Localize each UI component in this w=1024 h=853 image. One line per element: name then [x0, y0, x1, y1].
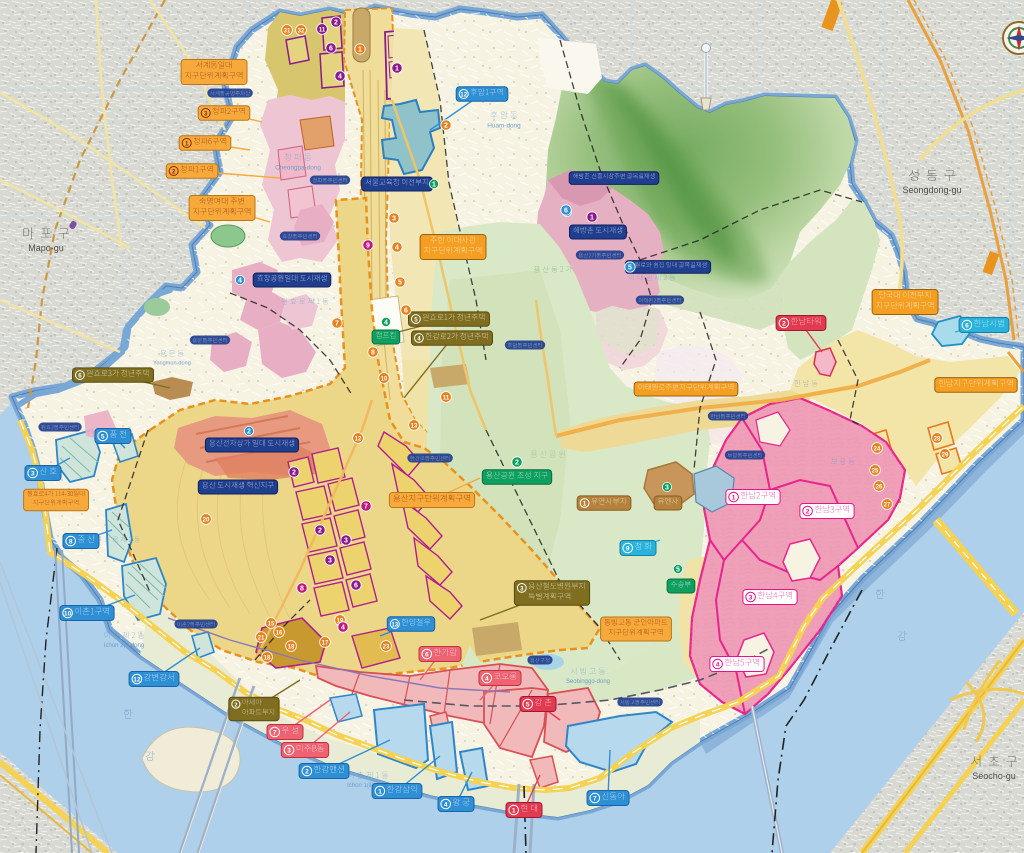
svg-text:4: 4 [716, 662, 720, 669]
svg-text:2: 2 [247, 429, 251, 436]
svg-text:2: 2 [782, 321, 786, 328]
svg-text:5: 5 [676, 567, 680, 574]
svg-text:6: 6 [965, 323, 969, 330]
svg-text:2: 2 [444, 123, 448, 130]
svg-text:32: 32 [298, 28, 305, 34]
svg-text:12: 12 [460, 92, 467, 99]
svg-text:5: 5 [398, 280, 402, 287]
svg-text:2: 2 [172, 169, 176, 176]
svg-text:7: 7 [593, 796, 597, 803]
svg-text:1: 1 [512, 808, 516, 815]
svg-text:3: 3 [665, 485, 669, 492]
svg-text:23: 23 [383, 644, 390, 650]
svg-text:3: 3 [392, 216, 396, 223]
svg-text:Huam-dong: Huam-dong [487, 123, 521, 130]
svg-text:24: 24 [874, 446, 881, 452]
svg-text:2: 2 [305, 769, 309, 776]
svg-text:3: 3 [328, 558, 332, 565]
svg-text:5: 5 [628, 265, 632, 272]
svg-text:Cheongpa-dong: Cheongpa-dong [275, 165, 321, 172]
svg-text:28: 28 [934, 436, 941, 442]
svg-text:1: 1 [378, 789, 382, 796]
svg-text:1: 1 [732, 495, 736, 502]
svg-text:17: 17 [322, 640, 329, 646]
svg-text:9: 9 [626, 546, 630, 553]
svg-text:2: 2 [334, 20, 338, 27]
svg-text:10: 10 [64, 611, 72, 618]
svg-text:6: 6 [329, 46, 333, 53]
svg-text:1: 1 [395, 66, 399, 73]
svg-text:25: 25 [872, 468, 879, 474]
svg-text:5: 5 [101, 434, 105, 441]
svg-text:5: 5 [414, 317, 418, 324]
svg-text:8: 8 [300, 586, 304, 593]
svg-text:31: 31 [284, 28, 291, 34]
svg-text:6: 6 [404, 308, 408, 315]
svg-text:27: 27 [884, 502, 891, 508]
svg-text:6: 6 [354, 583, 358, 590]
svg-text:8: 8 [371, 350, 375, 357]
svg-text:Seocho-gu: Seocho-gu [972, 771, 1016, 781]
svg-text:10: 10 [381, 376, 388, 382]
svg-text:3: 3 [204, 111, 208, 118]
svg-text:Seobinggo-dong: Seobinggo-dong [566, 679, 610, 685]
svg-text:12: 12 [355, 436, 362, 442]
svg-text:20: 20 [203, 517, 210, 523]
svg-text:4: 4 [341, 625, 345, 632]
svg-text:4: 4 [485, 676, 489, 683]
svg-text:4: 4 [338, 74, 342, 81]
svg-text:3: 3 [344, 538, 348, 545]
svg-text:4: 4 [395, 245, 399, 252]
svg-text:13: 13 [391, 622, 398, 629]
svg-text:2: 2 [292, 470, 296, 477]
svg-text:16: 16 [276, 630, 283, 636]
svg-text:21: 21 [258, 635, 265, 641]
svg-text:2: 2 [318, 528, 322, 535]
svg-text:3: 3 [31, 471, 35, 478]
svg-text:1: 1 [590, 215, 594, 222]
svg-text:2: 2 [234, 703, 237, 709]
svg-text:1: 1 [185, 141, 189, 148]
svg-text:18: 18 [288, 644, 295, 650]
svg-text:3: 3 [287, 748, 291, 755]
svg-text:1: 1 [432, 182, 436, 189]
svg-text:4: 4 [417, 336, 421, 343]
svg-text:18: 18 [264, 655, 271, 661]
svg-text:12: 12 [133, 677, 141, 684]
svg-text:Mapo-gu: Mapo-gu [28, 243, 64, 253]
svg-text:5: 5 [526, 702, 530, 709]
svg-text:6: 6 [564, 208, 568, 215]
svg-text:7: 7 [273, 730, 277, 737]
svg-text:13: 13 [411, 423, 418, 429]
svg-text:Ichon 2(i)-dong: Ichon 2(i)-dong [104, 643, 144, 649]
svg-text:11: 11 [319, 27, 326, 33]
svg-text:7: 7 [335, 321, 339, 328]
svg-text:3: 3 [749, 595, 753, 602]
svg-text:2: 2 [515, 460, 519, 467]
svg-text:9: 9 [366, 243, 370, 250]
svg-text:2: 2 [806, 509, 810, 516]
svg-text:Yongmun-dong: Yongmun-dong [153, 361, 191, 367]
svg-text:26: 26 [876, 484, 883, 490]
svg-text:Seongdong-gu: Seongdong-gu [902, 185, 961, 195]
svg-text:8: 8 [69, 539, 73, 546]
svg-text:4: 4 [238, 278, 242, 285]
svg-text:6: 6 [425, 652, 429, 659]
svg-text:7: 7 [364, 504, 368, 511]
svg-text:6: 6 [78, 373, 82, 380]
svg-text:4: 4 [384, 320, 388, 327]
svg-text:29: 29 [942, 452, 949, 458]
svg-text:11: 11 [443, 395, 450, 401]
svg-text:4: 4 [444, 802, 448, 809]
svg-text:15: 15 [268, 621, 275, 627]
svg-text:1: 1 [358, 47, 362, 54]
